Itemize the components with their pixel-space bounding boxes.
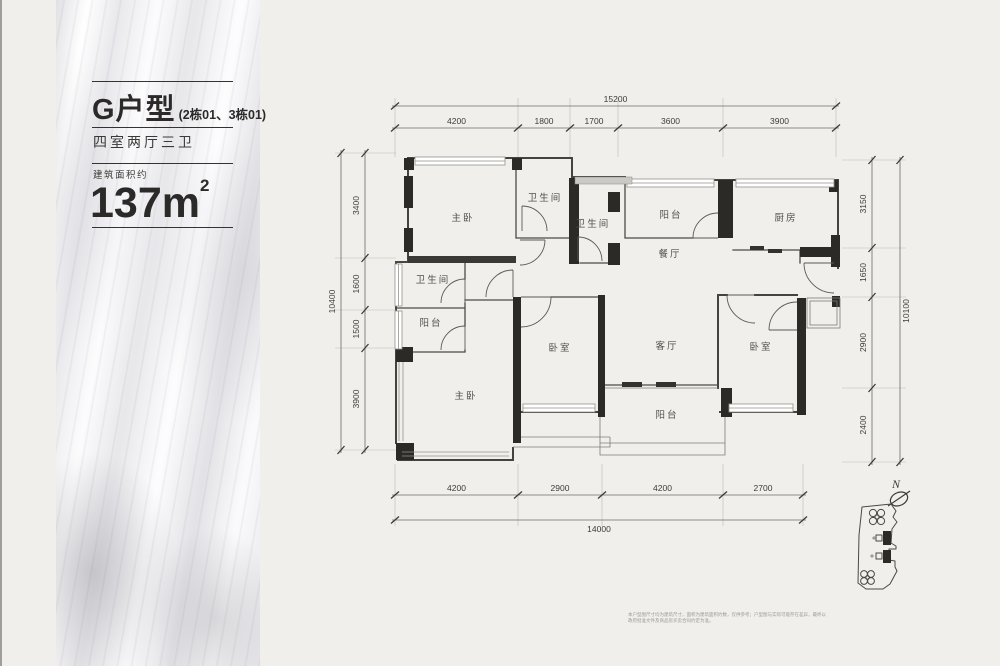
room-label: 主卧 xyxy=(454,390,477,402)
dimension-value: 3900 xyxy=(351,389,361,408)
room-label: 餐厅 xyxy=(658,248,681,260)
shear-wall xyxy=(721,388,732,417)
wall-band xyxy=(408,256,516,263)
divider-line xyxy=(92,227,233,228)
dimension-value: 4200 xyxy=(447,483,466,493)
room-label: 阳台 xyxy=(655,409,678,421)
dimension-value: 15200 xyxy=(604,94,628,104)
sliding-door-leaf xyxy=(768,249,782,253)
divider-line xyxy=(92,163,233,164)
room-labels-group: 主卧卫生间卫生间阳台厨房餐厅卫生间阳台卧室客厅卧室主卧阳台 xyxy=(416,192,798,421)
site-building-block xyxy=(883,531,891,545)
shear-wall xyxy=(404,158,414,170)
area-value: 137m2 xyxy=(90,176,209,228)
divider-line xyxy=(92,127,233,128)
shear-wall xyxy=(797,298,806,415)
doors-group xyxy=(441,206,834,387)
sliding-door-leaf xyxy=(656,382,676,387)
room-label: 厨房 xyxy=(774,212,797,224)
shear-wall xyxy=(831,235,840,267)
room-label: 阳台 xyxy=(659,209,682,221)
dimension-chain-left-total: 10400 xyxy=(327,149,345,454)
dimension-value: 4200 xyxy=(447,116,466,126)
shear-wall xyxy=(512,158,522,170)
room-label: 主卧 xyxy=(451,212,474,224)
dimension-value: 2400 xyxy=(858,415,868,434)
dimension-value: 1700 xyxy=(585,116,604,126)
area-superscript: 2 xyxy=(200,176,209,195)
compass-north-label: N xyxy=(891,477,901,491)
shear-wall xyxy=(404,176,413,208)
dimension-value: 3400 xyxy=(351,196,361,215)
dimension-value: 1800 xyxy=(535,116,554,126)
room-label: 卧室 xyxy=(548,342,571,354)
dimension-chain-top-segments: 42001800170036003900 xyxy=(391,116,840,132)
room-label: 卫生间 xyxy=(528,192,563,204)
sliding-door-leaf xyxy=(622,382,642,387)
unit-type-buildings: (2栋01、3栋01) xyxy=(179,108,267,122)
shear-wall xyxy=(513,297,521,443)
dimension-chain-bottom-total: 14000 xyxy=(391,517,807,535)
dimension-chain-right-segments: 3150165029002400 xyxy=(858,156,876,466)
tree-icon xyxy=(869,509,884,524)
shear-wall xyxy=(608,243,620,265)
dimension-value: 3900 xyxy=(770,116,789,126)
dimension-value: 4200 xyxy=(653,483,672,493)
unit-type-title: G户型(2栋01、3栋01) xyxy=(92,86,266,128)
dimension-value: 1500 xyxy=(351,319,361,338)
room-label: 卫生间 xyxy=(416,274,451,286)
dimension-value: 2900 xyxy=(858,333,868,352)
dimension-chain-bottom-segments: 4200290042002700 xyxy=(391,483,807,499)
dimension-value: 1600 xyxy=(351,274,361,293)
dimension-value: 14000 xyxy=(587,524,611,534)
shear-wall xyxy=(404,228,413,252)
dimension-value: 2900 xyxy=(551,483,570,493)
dimension-value: 10100 xyxy=(901,299,911,323)
site-building-block xyxy=(883,550,891,563)
shear-wall xyxy=(608,192,620,212)
walls-group xyxy=(396,158,840,460)
shear-wall xyxy=(396,443,414,460)
shear-wall xyxy=(598,295,605,417)
sliding-door-leaf xyxy=(750,246,764,250)
divider-line xyxy=(92,81,233,82)
room-label: 客厅 xyxy=(655,340,678,352)
room-label: 卧室 xyxy=(749,341,772,353)
dimension-chain-left-segments: 3400160015003900 xyxy=(351,149,369,454)
shear-wall xyxy=(718,180,733,238)
dimension-chain-right-total: 10100 xyxy=(897,156,912,466)
room-label: 卫生间 xyxy=(576,218,611,230)
site-map-diagram xyxy=(858,504,897,589)
dimension-value: 3150 xyxy=(858,194,868,213)
compass-north-icon xyxy=(888,489,910,508)
dimension-value: 10400 xyxy=(327,289,337,313)
room-label: 阳台 xyxy=(419,317,442,329)
dimension-value: 2700 xyxy=(754,483,773,493)
dimension-value: 1650 xyxy=(858,263,868,282)
unit-type-name: G户型 xyxy=(92,94,176,126)
tree-icon xyxy=(861,571,875,585)
dimension-value: 3600 xyxy=(661,116,680,126)
dimension-chain-top-total: 15200 xyxy=(391,94,840,110)
footer-disclaimer: 本户型图尺寸均为建筑尺寸，面积为建筑面积约数，仅供参考；户型图与实际可能存在差异… xyxy=(628,612,828,624)
room-layout-text: 四室两厅三卫 xyxy=(93,132,195,152)
